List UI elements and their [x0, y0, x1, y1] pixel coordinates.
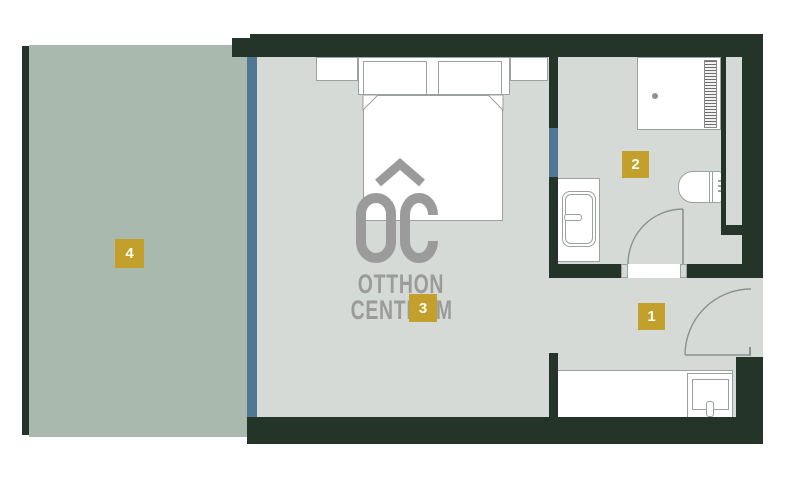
wall-corner-bottom-right: [736, 357, 763, 417]
bed-fold-right: [488, 95, 503, 110]
bathroom-door-post-left: [621, 264, 628, 278]
wall-divider-upper: [549, 57, 558, 128]
room-badge-3: 3: [409, 294, 437, 322]
room-badge-4: 4: [115, 239, 144, 268]
wall-bottom: [247, 417, 763, 444]
room-badge-3-label: 3: [419, 300, 427, 317]
divider-window: [549, 128, 558, 177]
terrace-railing: [22, 46, 29, 435]
wall-divider-mid: [549, 177, 558, 264]
wall-shaft-thin: [721, 57, 726, 235]
oc-roof-icon: [378, 164, 422, 183]
wall-divider-lower: [549, 353, 558, 417]
room-badge-2: 2: [622, 151, 649, 178]
bathroom-door-post-right: [680, 264, 687, 278]
oc-letter-o: [361, 198, 391, 258]
room-badge-1-label: 1: [647, 308, 655, 325]
wall-top-step: [232, 38, 250, 57]
wall-right: [742, 34, 763, 278]
bed-fold-left: [363, 95, 378, 110]
wall-top: [250, 34, 763, 57]
bathroom-door-arc: [628, 209, 683, 264]
wall-hall-top-right: [686, 264, 763, 278]
room-badge-1: 1: [638, 303, 665, 330]
room-badge-4-label: 4: [125, 245, 133, 262]
wall-shaft-block: [721, 225, 763, 235]
room-badge-2-label: 2: [631, 156, 639, 173]
entry-door-arc: [685, 289, 751, 355]
floorplan: OTTHON CENTRUM 1 2 3 4: [0, 0, 800, 482]
wall-bath-bottom-left: [549, 264, 622, 278]
oc-letter-c: [405, 198, 433, 258]
